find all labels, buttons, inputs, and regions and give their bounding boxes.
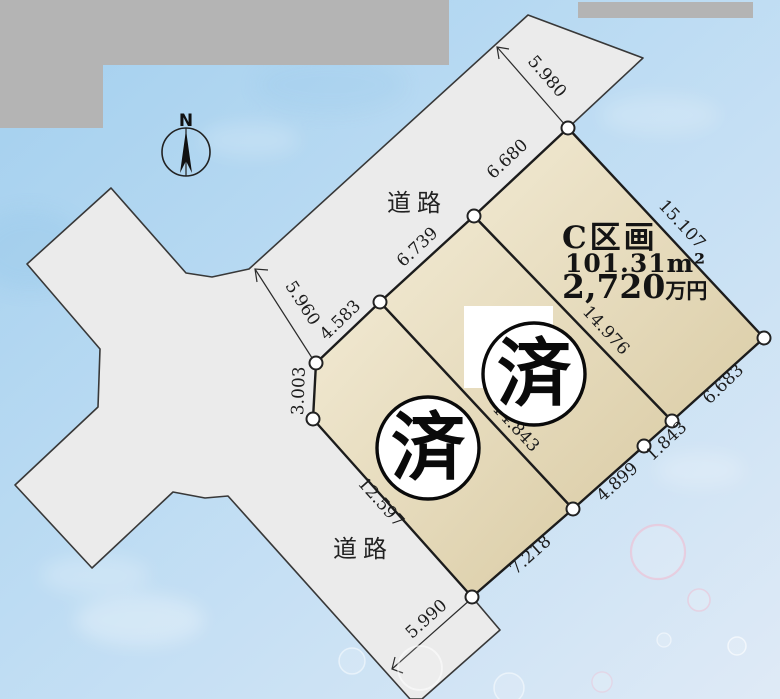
sold-badge-text: 済	[391, 405, 466, 491]
road-label-bottom: 道路	[333, 535, 393, 563]
sold-badge-text: 済	[497, 331, 572, 417]
dimension-label: 3.003	[288, 366, 310, 415]
road-label-top: 道路	[387, 189, 447, 217]
masked-area-left	[0, 0, 103, 128]
boundary-vertex	[374, 296, 387, 309]
boundary-vertex	[310, 357, 323, 370]
boundary-vertex	[567, 503, 580, 516]
boundary-vertex	[307, 413, 320, 426]
boundary-vertex	[758, 332, 771, 345]
parcel-c-price-unit: 万円	[664, 278, 707, 303]
lot-map-canvas: 5.9806.6806.7394.5833.0035.96015.10714.9…	[0, 0, 780, 699]
lot-map: 5.9806.6806.7394.5833.0035.96015.10714.9…	[0, 0, 780, 699]
boundary-vertex	[562, 122, 575, 135]
boundary-vertex	[466, 591, 479, 604]
masked-area-top-right	[578, 2, 753, 18]
boundary-vertex	[468, 210, 481, 223]
parcel-c-price-value: 2,720	[562, 267, 665, 306]
